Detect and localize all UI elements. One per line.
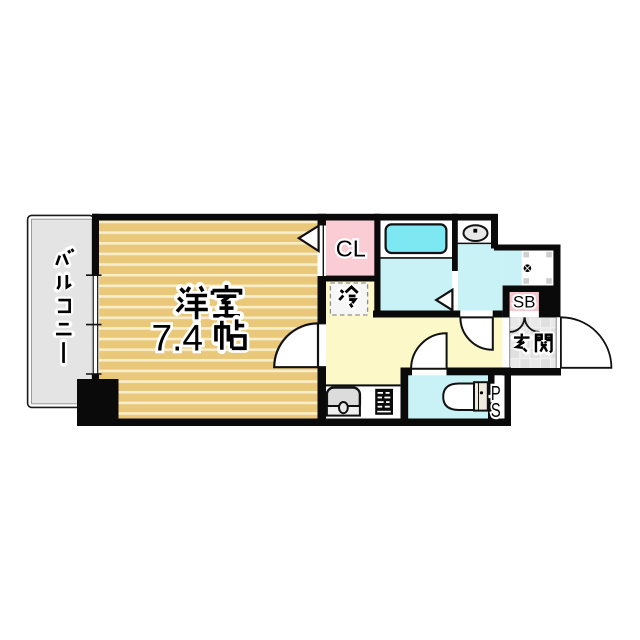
svg-text:CL: CL: [336, 235, 366, 261]
svg-text:SB: SB: [513, 292, 535, 311]
svg-text:7.4: 7.4: [152, 318, 203, 359]
svg-text:S: S: [491, 399, 501, 422]
